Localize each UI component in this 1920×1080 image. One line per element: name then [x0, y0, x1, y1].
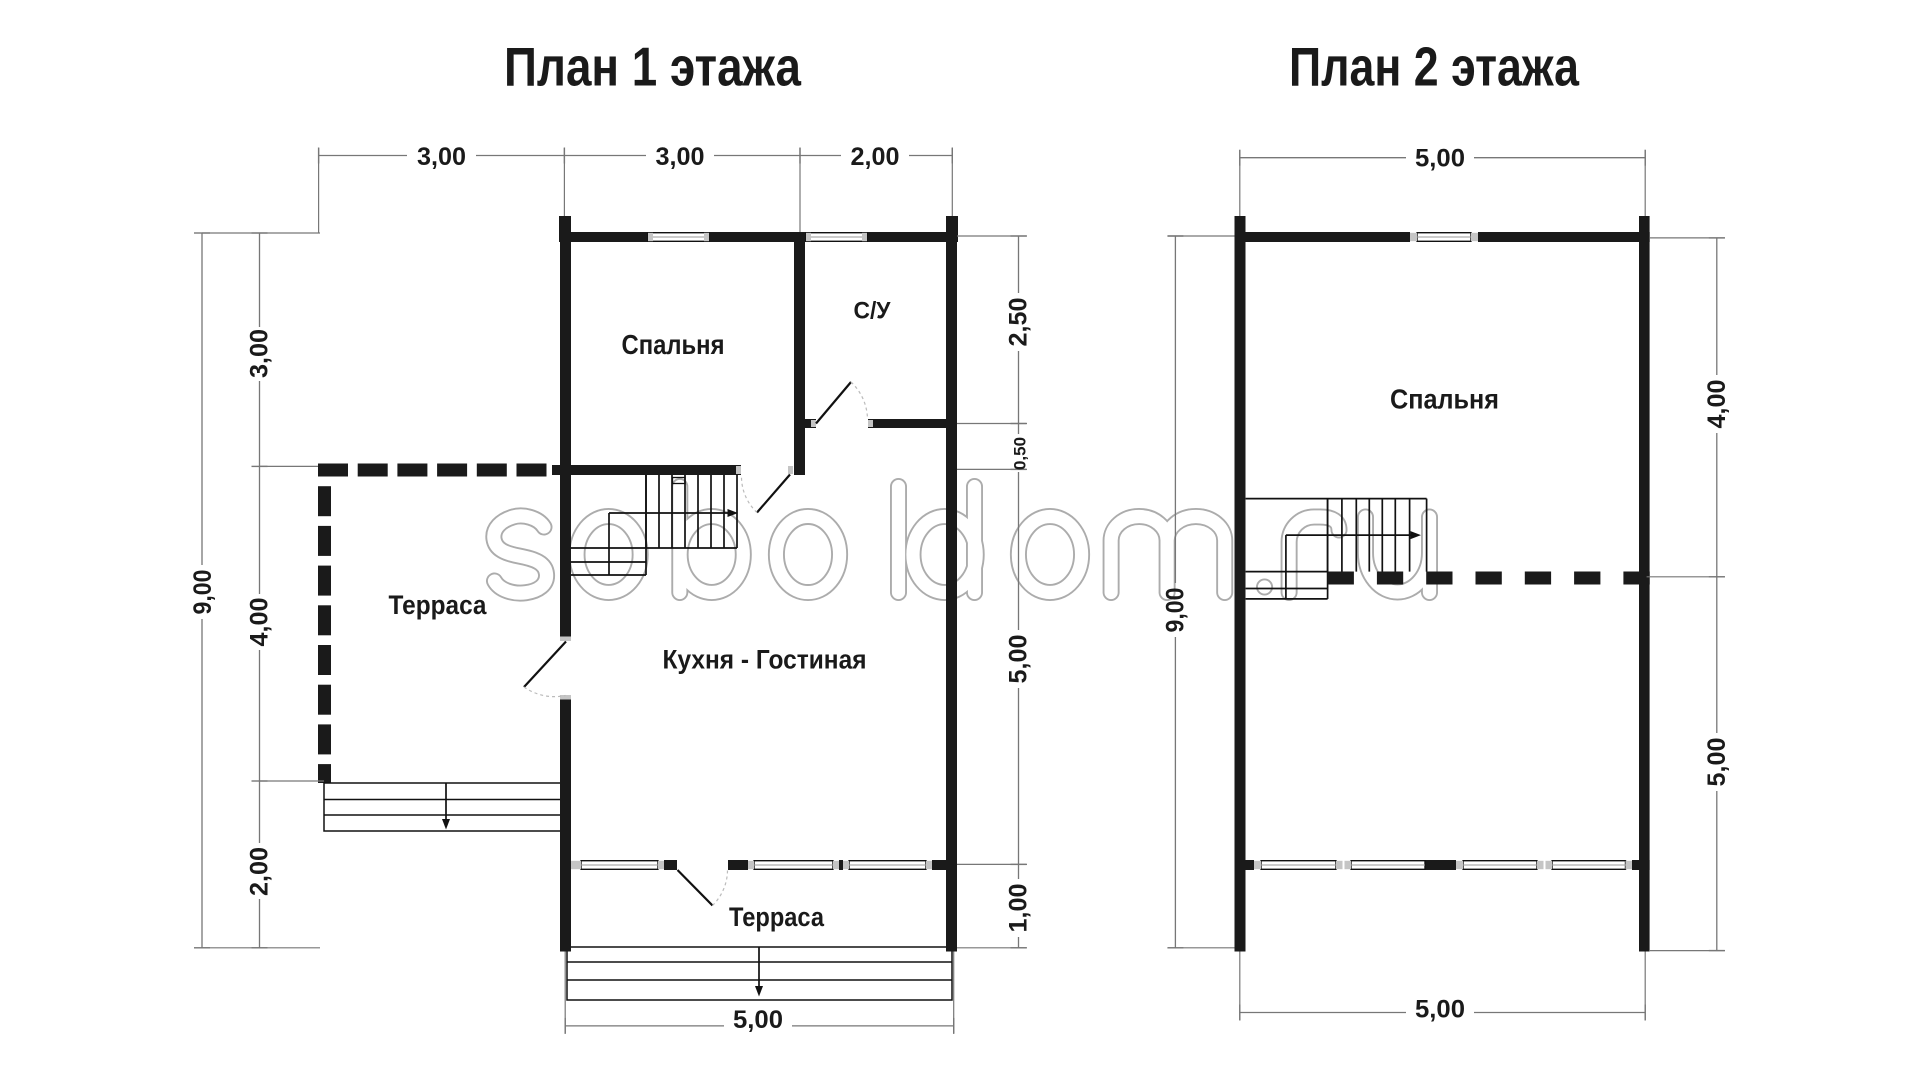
svg-text:Терраса: Терраса — [389, 590, 488, 620]
svg-text:2,50: 2,50 — [1005, 298, 1033, 347]
svg-text:3,00: 3,00 — [656, 143, 705, 171]
svg-text:План 1 этажа: План 1 этажа — [504, 36, 801, 98]
svg-text:4,00: 4,00 — [1703, 380, 1731, 429]
svg-text:Терраса: Терраса — [729, 902, 825, 932]
svg-text:Спальня: Спальня — [1390, 384, 1499, 415]
svg-text:5,00: 5,00 — [1703, 738, 1731, 787]
svg-text:3,00: 3,00 — [246, 329, 274, 378]
svg-text:1,00: 1,00 — [1005, 884, 1033, 933]
svg-text:9,00: 9,00 — [189, 570, 217, 615]
svg-text:9,00: 9,00 — [1161, 588, 1189, 633]
svg-text:Спальня: Спальня — [622, 329, 725, 360]
svg-text:0,50: 0,50 — [1011, 437, 1030, 470]
svg-text:5,00: 5,00 — [1415, 996, 1465, 1024]
svg-text:3,00: 3,00 — [417, 143, 466, 171]
svg-text:4,00: 4,00 — [246, 598, 274, 647]
svg-text:Кухня - Гостиная: Кухня - Гостиная — [663, 645, 867, 675]
svg-text:5,00: 5,00 — [1005, 635, 1033, 684]
svg-text:С/У: С/У — [854, 298, 892, 325]
svg-text:5,00: 5,00 — [733, 1006, 783, 1034]
svg-text:План 2 этажа: План 2 этажа — [1289, 36, 1579, 98]
svg-text:2,00: 2,00 — [851, 143, 900, 171]
svg-text:5,00: 5,00 — [1415, 145, 1465, 173]
svg-text:2,00: 2,00 — [246, 847, 274, 896]
